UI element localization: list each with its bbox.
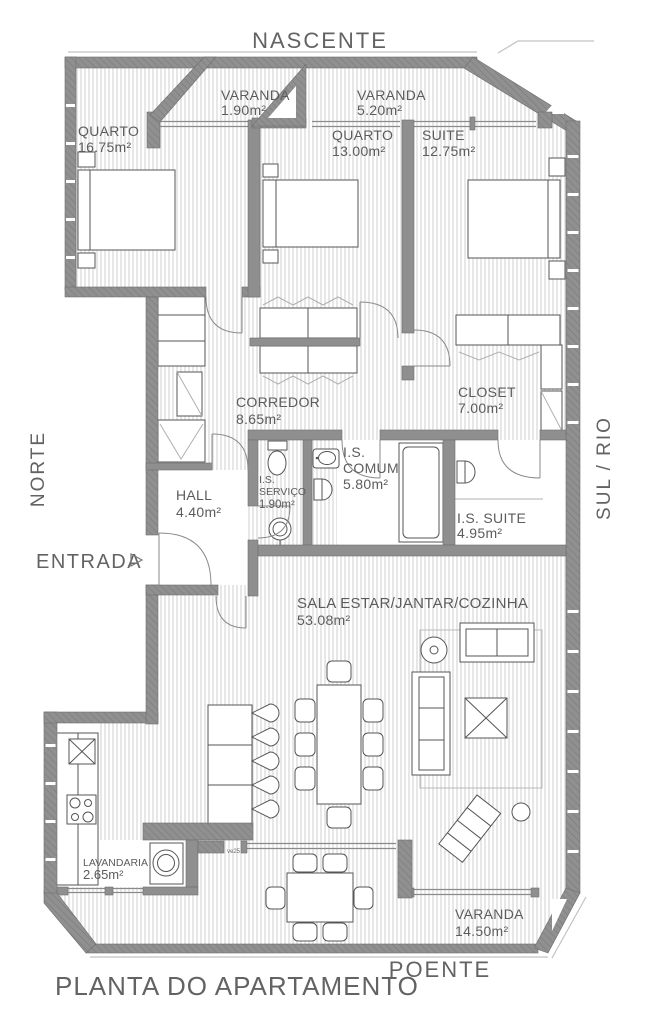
washing-machine — [150, 843, 183, 884]
nightstand — [263, 164, 278, 177]
wall-bottom-parapet — [86, 944, 538, 953]
page-title: PLANTA DO APARTAMENTO — [55, 971, 419, 1001]
chair — [327, 807, 351, 828]
label-quarto-1: QUARTO — [78, 123, 139, 139]
chair — [363, 733, 383, 756]
toilet — [457, 461, 465, 483]
svg-text:5.20m²: 5.20m² — [357, 102, 402, 118]
toilet — [314, 479, 322, 500]
chair — [363, 699, 383, 722]
svg-text:2.65m²: 2.65m² — [83, 867, 124, 882]
entrada-label: ENTRADA — [36, 551, 142, 573]
nightstand — [78, 253, 95, 268]
svg-text:14.50m²: 14.50m² — [455, 923, 508, 939]
label-varanda-2: VARANDA — [357, 87, 426, 103]
side-table — [512, 803, 530, 821]
wall-quarto1-south — [65, 287, 206, 297]
wall-sala-west — [146, 585, 158, 724]
wall-quarto1-quarto2 — [248, 120, 260, 297]
svg-text:1.90m²: 1.90m² — [221, 102, 266, 118]
nightstand — [263, 250, 278, 263]
label-sala: SALA ESTAR/JANTAR/COZINHA — [297, 595, 528, 612]
wall-bath-south — [258, 545, 566, 556]
svg-text:13.00m²: 13.00m² — [332, 143, 385, 159]
nightstand — [549, 261, 565, 279]
label-varanda-1: VARANDA — [221, 87, 290, 103]
wall-hall-north — [146, 463, 212, 470]
dining-table — [317, 685, 361, 804]
svg-text:SERVIÇO: SERVIÇO — [259, 486, 306, 498]
label-is-servico: I.S. — [259, 474, 275, 486]
chair — [327, 661, 351, 682]
label-hall: HALL — [176, 487, 212, 503]
floor-plan: VARANDA 1.90m² VARANDA 5.20m² QUARTO 16.… — [0, 0, 646, 1024]
compass-sul-rio: SUL / RIO — [594, 416, 615, 520]
wall-comum-issuite — [443, 440, 455, 545]
chair — [266, 887, 285, 909]
label-corredor: CORREDOR — [236, 394, 320, 410]
chair — [363, 767, 383, 790]
label-is-suite: I.S. SUITE — [457, 510, 526, 526]
wall-lavandaria-south — [143, 887, 198, 895]
loveseat — [460, 623, 534, 662]
chair — [323, 854, 347, 872]
nightstand — [549, 158, 565, 176]
compass-norte: NORTE — [28, 431, 49, 507]
wall-hall-east — [248, 440, 258, 506]
svg-text:7.00m²: 7.00m² — [458, 400, 503, 416]
svg-text:4.95m²: 4.95m² — [457, 525, 502, 541]
chair — [354, 887, 373, 909]
wall-lavandaria-north — [143, 823, 253, 840]
chair — [323, 923, 347, 941]
svg-text:1.90m²: 1.90m² — [259, 499, 295, 511]
wall-sala-south-pier — [398, 840, 412, 898]
chair — [293, 854, 317, 872]
svg-text:8.65m²: 8.65m² — [236, 411, 281, 427]
entrance-marker: ENTRADA — [36, 551, 142, 573]
stove — [67, 795, 96, 824]
label-varanda-poente: VARANDA — [455, 906, 524, 922]
label-is-comum: I.S. — [343, 444, 365, 460]
label-suite: SUITE — [422, 127, 465, 143]
chair — [295, 767, 315, 790]
wall-sala-south — [198, 841, 224, 853]
wall-wardrobe-mid — [250, 338, 360, 346]
svg-text:4.40m²: 4.40m² — [176, 504, 221, 520]
wall-corredor-west — [146, 297, 158, 463]
label-window-code: ve25 — [227, 849, 241, 855]
chair — [295, 733, 315, 756]
chair — [295, 699, 315, 722]
svg-text:5.80m²: 5.80m² — [343, 476, 388, 492]
sofa — [412, 672, 450, 775]
svg-text:COMUM: COMUM — [343, 460, 399, 476]
outdoor-table — [287, 873, 353, 922]
toilet — [268, 441, 287, 450]
wall-left-lower — [44, 712, 57, 893]
compass-nascente: NASCENTE — [252, 28, 388, 53]
wall-right — [566, 121, 580, 893]
wall-hall-west — [146, 463, 158, 535]
wall-top — [65, 57, 477, 68]
chair — [293, 923, 317, 941]
wall-bath-north — [248, 430, 342, 440]
wall-lavandaria-east — [186, 840, 198, 887]
label-quarto-2: QUARTO — [332, 127, 393, 143]
wall-kitchen-north — [44, 712, 158, 723]
coffee-table — [465, 698, 507, 738]
toilet-bowl — [268, 451, 286, 475]
wall-left-upper — [65, 57, 76, 290]
bathtub — [399, 443, 443, 542]
svg-text:12.75m²: 12.75m² — [422, 143, 475, 159]
label-closet: CLOSET — [458, 384, 516, 400]
side-table — [421, 637, 447, 663]
svg-text:16.75m²: 16.75m² — [78, 139, 131, 155]
wall-hall-south — [146, 585, 218, 595]
wall-quarto2-suite — [402, 120, 414, 333]
svg-text:53.08m²: 53.08m² — [297, 612, 350, 628]
